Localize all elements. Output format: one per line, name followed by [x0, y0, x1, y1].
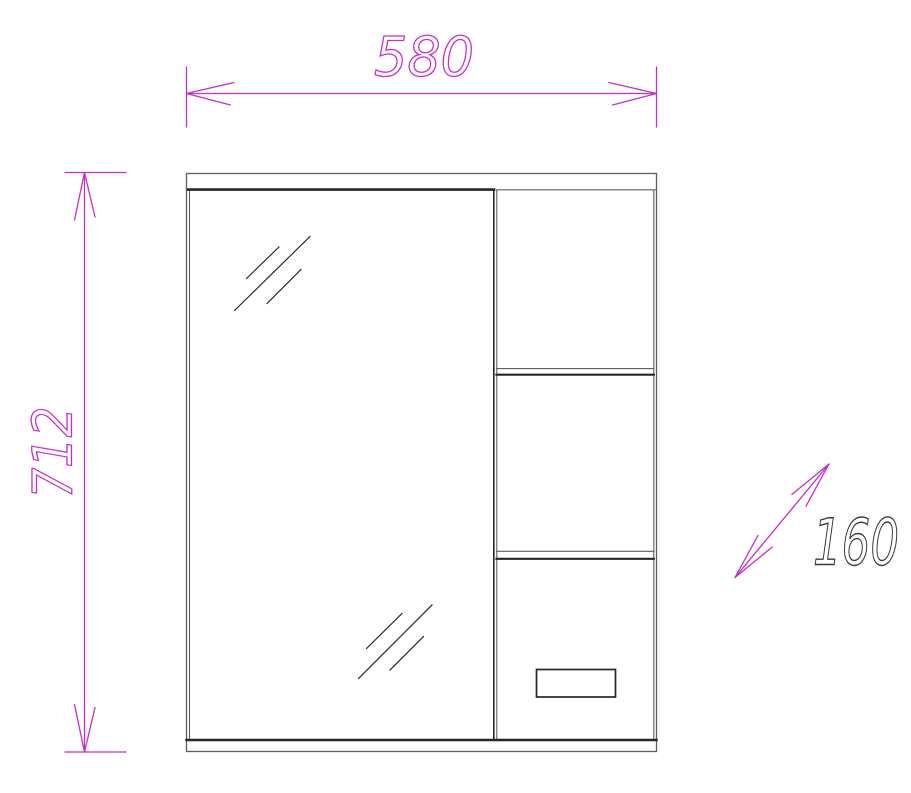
cabinet-dark-lines	[187, 190, 657, 741]
hatch-stroke	[267, 270, 301, 304]
width-dimension-label: 580	[374, 26, 474, 89]
depth-dimension-label: 160	[813, 507, 899, 581]
cabinet-technical-drawing: 580 712 160	[0, 0, 911, 793]
width-dimension: 580	[187, 26, 657, 128]
drawer-handle-recess	[537, 670, 616, 698]
hatch-stroke	[359, 605, 433, 679]
dimension-lines: 580 712	[22, 26, 830, 753]
hatch-stroke	[235, 237, 311, 311]
depth-label-group: 160	[813, 507, 899, 581]
mirror-hatch-lower	[359, 605, 433, 679]
drawing-canvas: 580 712 160	[0, 0, 911, 793]
mirror-hatch-upper	[235, 237, 311, 311]
hatch-stroke	[247, 247, 280, 279]
cabinet-outer-rect	[187, 174, 657, 752]
height-dimension: 712	[22, 173, 127, 753]
hatch-stroke	[367, 614, 403, 649]
cabinet-light-lines	[187, 174, 657, 752]
height-dimension-label: 712	[22, 407, 85, 499]
